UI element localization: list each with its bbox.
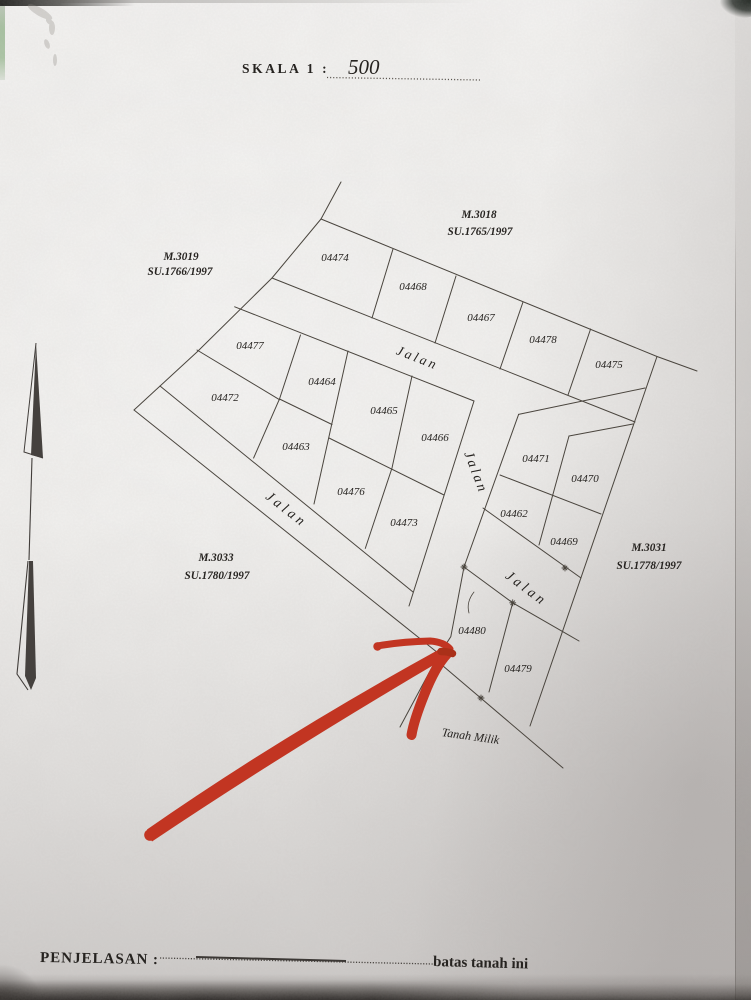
svg-text:04470: 04470: [571, 473, 599, 485]
svg-text:M.3031: M.3031: [630, 542, 666, 554]
svg-text:500: 500: [348, 55, 380, 79]
svg-text:04462: 04462: [500, 508, 528, 520]
svg-text:SU.1766/1997: SU.1766/1997: [148, 266, 213, 278]
svg-text:M.3018: M.3018: [460, 209, 497, 221]
svg-text:M.3033: M.3033: [197, 552, 234, 564]
svg-text:04471: 04471: [522, 453, 550, 465]
svg-text:04469: 04469: [550, 536, 578, 548]
svg-text:04467: 04467: [467, 312, 495, 324]
svg-text:04475: 04475: [595, 359, 623, 371]
svg-text:04466: 04466: [421, 432, 449, 444]
svg-text:04474: 04474: [321, 252, 349, 264]
svg-text:04477: 04477: [236, 340, 264, 352]
svg-text:04464: 04464: [308, 376, 336, 388]
svg-text:SU.1778/1997: SU.1778/1997: [617, 560, 682, 572]
svg-text:04468: 04468: [399, 281, 427, 293]
svg-text:M.3019: M.3019: [162, 251, 199, 263]
svg-text:SU.1765/1997: SU.1765/1997: [448, 226, 513, 238]
svg-text:SU.1780/1997: SU.1780/1997: [185, 570, 250, 582]
svg-text:04480: 04480: [458, 625, 486, 637]
svg-text:04472: 04472: [211, 392, 239, 404]
svg-text:04478: 04478: [529, 334, 557, 346]
svg-text:04465: 04465: [370, 405, 398, 417]
svg-text:04479: 04479: [504, 663, 532, 675]
svg-text:04463: 04463: [282, 441, 310, 453]
svg-text:SKALA 1 :: SKALA 1 :: [242, 61, 329, 76]
svg-text:04476: 04476: [337, 486, 365, 498]
svg-text:batas tanah ini: batas tanah ini: [433, 954, 528, 972]
svg-text:PENJELASAN :: PENJELASAN :: [40, 950, 159, 968]
svg-text:04473: 04473: [390, 517, 418, 529]
